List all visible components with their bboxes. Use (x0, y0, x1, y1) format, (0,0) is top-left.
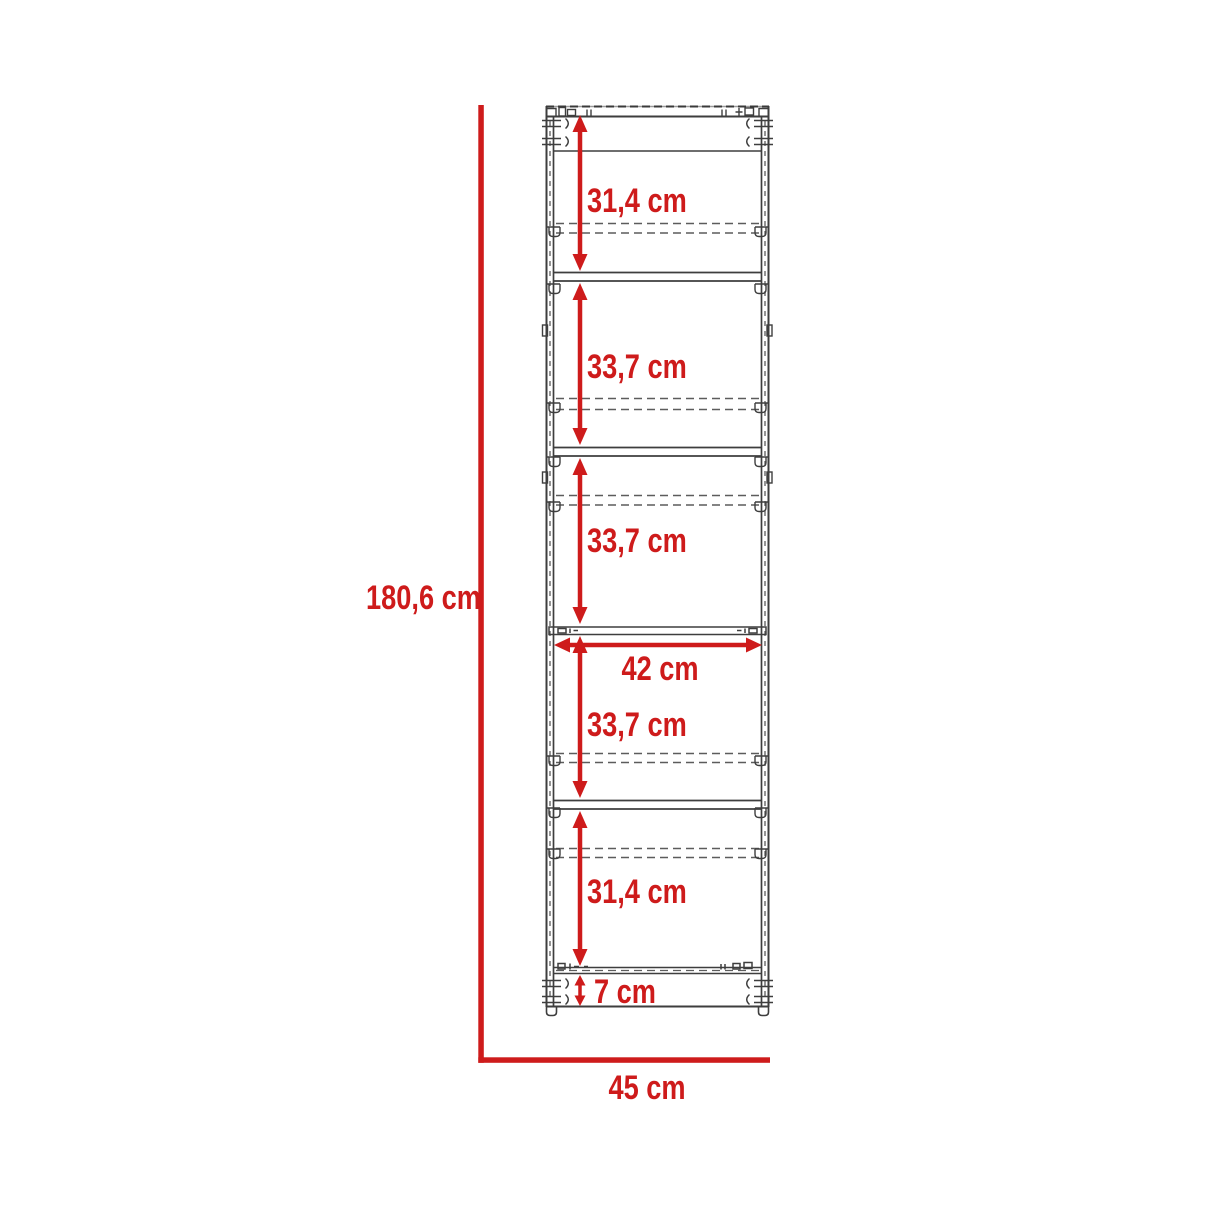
right-side-panel (762, 106, 769, 1007)
compartment-4-label: 33,7 cm (587, 708, 687, 742)
dim-arrow-plinth (575, 975, 586, 1006)
shelf-2 (554, 448, 762, 457)
plinth-and-feet (546, 1007, 769, 1016)
dim-arrow-compartment-2 (573, 283, 588, 445)
dim-arrow-compartment-4 (573, 636, 588, 798)
compartment-1-label: 31,4 cm (587, 184, 687, 218)
overall-width-label: 45 cm (591, 1071, 703, 1105)
left-side-panel (547, 106, 554, 1007)
dim-arrow-compartment-1 (573, 115, 588, 271)
compartment-2-label: 33,7 cm (587, 350, 687, 384)
interior-width-label: 42 cm (604, 652, 716, 686)
compartment-3-label: 33,7 cm (587, 524, 687, 558)
shelf-4 (554, 801, 762, 810)
dimension-graphics (478, 105, 770, 1063)
technical-drawing-canvas: 180,6 cm 31,4 cm 33,7 cm 33,7 cm 42 cm 3… (0, 0, 1214, 1214)
top-hardware-marks (547, 108, 769, 117)
shelf-3-fixed (549, 627, 766, 635)
overall-height-label: 180,6 cm (366, 581, 470, 615)
bottom-panel (554, 963, 762, 974)
dim-arrow-compartment-5 (573, 811, 588, 966)
shelf-1 (554, 273, 762, 282)
overall-width-extent-line (478, 1057, 770, 1063)
cam-lock-fittings (542, 119, 773, 1005)
compartment-5-label: 31,4 cm (587, 875, 687, 909)
dim-arrow-compartment-3 (573, 458, 588, 624)
plinth-height-label: 7 cm (594, 975, 656, 1009)
